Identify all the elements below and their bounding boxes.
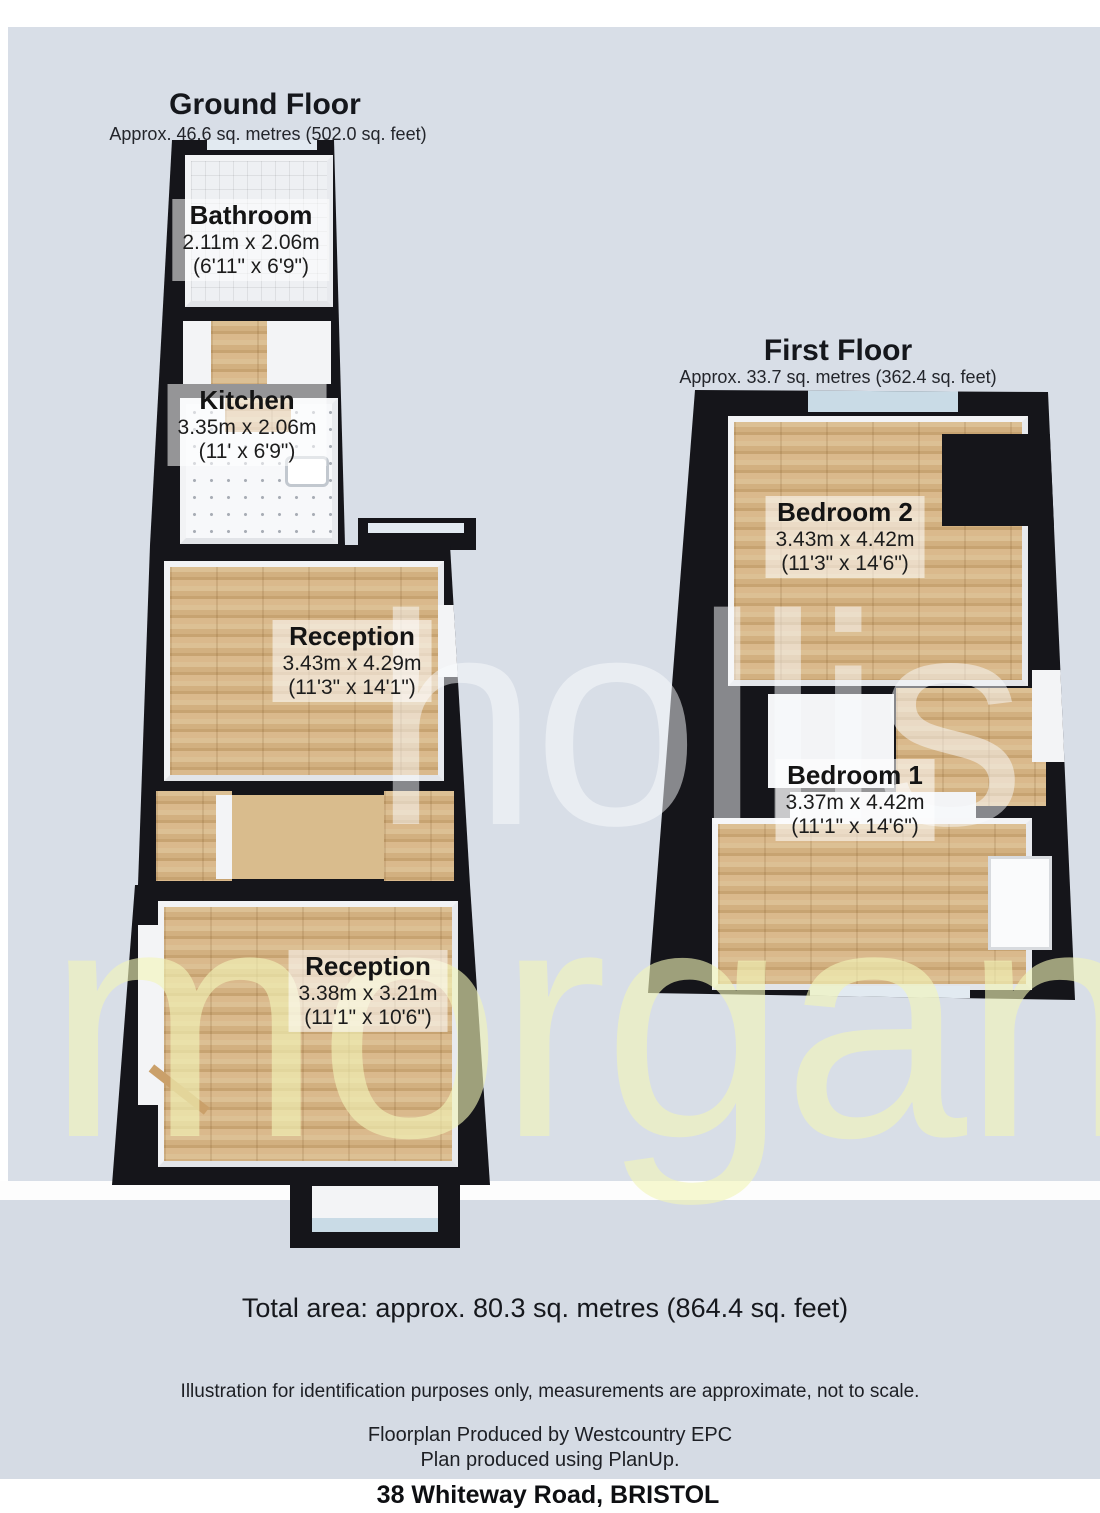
room-name: Kitchen (178, 386, 317, 416)
room-imperial: (11'3" x 14'6") (776, 552, 915, 576)
entrance-bay (290, 1180, 460, 1248)
room-imperial: (11'1" x 10'6") (299, 1006, 438, 1030)
floorplan-page: Ground Floor Approx. 46.6 sq. metres (50… (0, 0, 1100, 1513)
produced-by-text: Floorplan Produced by Westcountry EPC (368, 1424, 732, 1447)
room-metric: 3.38m x 3.21m (299, 982, 438, 1006)
reception1-alcove (438, 605, 466, 677)
room-name: Bathroom (182, 201, 319, 231)
room-metric: 3.43m x 4.29m (283, 652, 422, 676)
first-floor-area: Approx. 33.7 sq. metres (362.4 sq. feet) (679, 367, 996, 388)
reception-bay-window (368, 523, 464, 533)
room-metric: 3.35m x 2.06m (178, 416, 317, 440)
first-floor-plan (640, 388, 1100, 1018)
label-kitchen: Kitchen 3.35m x 2.06m (11' x 6'9") (168, 384, 327, 466)
bedroom1-floor (712, 818, 1032, 990)
disclaimer-text: Illustration for identification purposes… (181, 1381, 920, 1403)
stair-newel-wall (216, 795, 232, 879)
bedroom2-chimney (942, 434, 1054, 526)
room-imperial: (6'11" x 6'9") (182, 255, 319, 279)
produced-with-text: Plan produced using PlanUp. (420, 1449, 679, 1472)
label-bathroom: Bathroom 2.11m x 2.06m (6'11" x 6'9") (172, 199, 329, 281)
first-floor-block (640, 388, 1090, 1013)
room-name: Bedroom 1 (786, 761, 925, 791)
label-bedroom-2: Bedroom 2 3.43m x 4.42m (11'3" x 14'6") (766, 496, 925, 578)
staircase (232, 795, 384, 879)
room-name: Bedroom 2 (776, 498, 915, 528)
room-imperial: (11'3" x 14'1") (283, 676, 422, 700)
room-name: Reception (283, 622, 422, 652)
room-metric: 2.11m x 2.06m (182, 231, 319, 255)
ground-floor-title: Ground Floor (169, 88, 361, 122)
room-name: Reception (299, 952, 438, 982)
hallway-wood-floor (211, 321, 267, 384)
address-text: 38 Whiteway Road, BRISTOL (377, 1481, 720, 1510)
ground-floor-area: Approx. 46.6 sq. metres (502.0 sq. feet) (109, 124, 426, 145)
stair-side-floor-right (384, 791, 454, 881)
room-imperial: (11'1" x 14'6") (786, 815, 925, 839)
bedroom1-bay-alcove (1032, 670, 1078, 762)
label-bedroom-1: Bedroom 1 3.37m x 4.42m (11'1" x 14'6") (776, 759, 935, 841)
room-metric: 3.37m x 4.42m (786, 791, 925, 815)
label-reception-2: Reception 3.38m x 3.21m (11'1" x 10'6") (289, 950, 448, 1032)
ground-floor-mid-block (132, 545, 482, 885)
room-metric: 3.43m x 4.42m (776, 528, 915, 552)
reception2-floor (158, 901, 458, 1167)
ground-floor-bottom-block (110, 885, 510, 1185)
total-area-text: Total area: approx. 80.3 sq. metres (864… (242, 1293, 848, 1324)
bedroom1-window (810, 986, 970, 998)
first-floor-title: First Floor (764, 334, 912, 368)
entrance-glass (312, 1218, 438, 1232)
room-imperial: (11' x 6'9") (178, 440, 317, 464)
bedroom2-window (808, 390, 958, 412)
entrance-recess (312, 1186, 438, 1218)
bedroom1-furniture (988, 856, 1052, 950)
label-reception-1: Reception 3.43m x 4.29m (11'3" x 14'1") (273, 620, 432, 702)
